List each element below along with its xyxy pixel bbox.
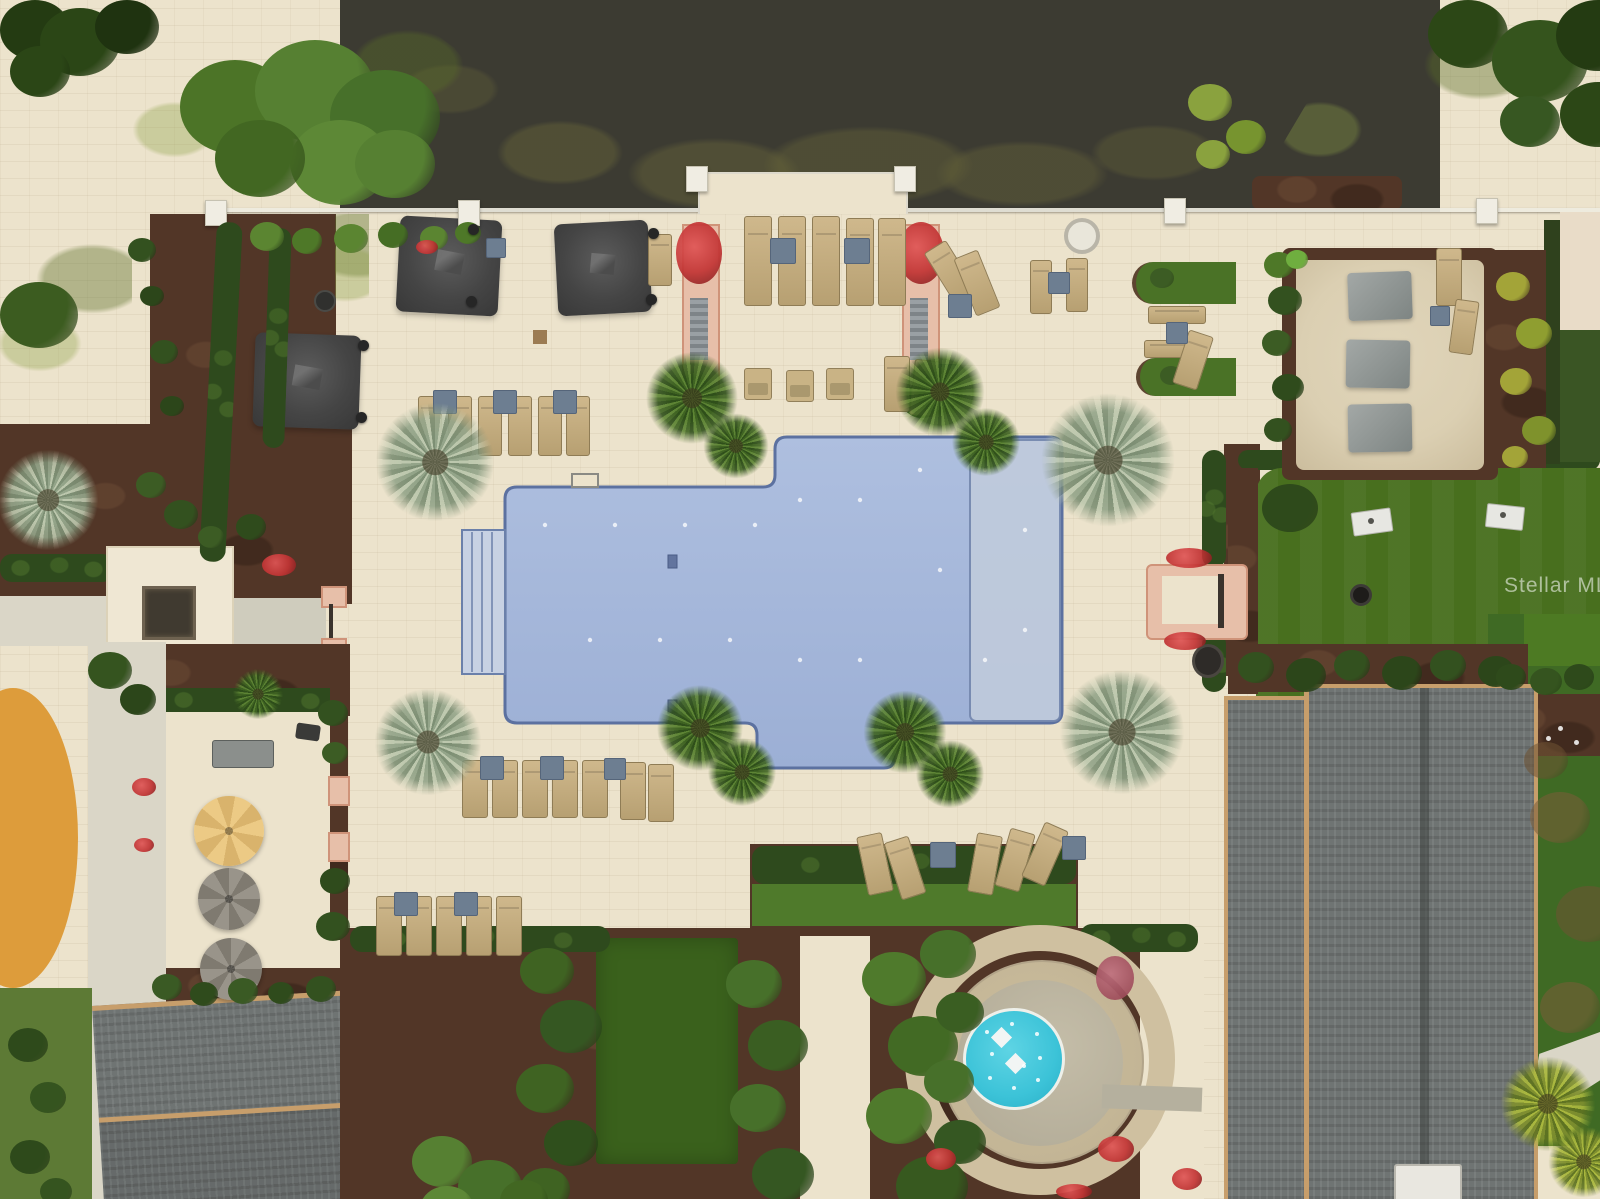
splash-jet xyxy=(1038,1056,1042,1060)
side-table xyxy=(1048,272,1070,294)
shrub xyxy=(306,976,336,1002)
shrub xyxy=(748,1020,808,1071)
splash-jet xyxy=(1035,1032,1039,1036)
shrub xyxy=(1530,668,1562,695)
sidewalk-west xyxy=(0,596,112,646)
patio-umbrella-tan xyxy=(194,796,264,866)
umbrella-wheel xyxy=(466,296,477,307)
lounge-chair xyxy=(648,234,672,286)
umbrella-wheel xyxy=(358,340,369,351)
flower-bed xyxy=(416,240,438,254)
shrub xyxy=(250,222,284,251)
palm-tree xyxy=(356,670,500,814)
patio-chair xyxy=(826,368,854,400)
shrub xyxy=(190,982,218,1006)
lawn-ball xyxy=(1350,584,1372,606)
flower-bed xyxy=(134,838,154,852)
shrub xyxy=(198,526,224,548)
flower-bed xyxy=(132,778,156,796)
shrub xyxy=(920,930,976,978)
east-shrub-block xyxy=(1560,330,1600,462)
shrub xyxy=(1238,652,1274,683)
sidewalk-plaza-east xyxy=(228,598,326,644)
splash-jet xyxy=(985,1030,989,1034)
shrub xyxy=(1272,374,1304,401)
patio-gate-pillar xyxy=(328,832,350,862)
east-wall xyxy=(1560,212,1600,332)
palm-tree xyxy=(224,660,292,728)
shrub xyxy=(1502,446,1528,468)
shrub xyxy=(544,1120,598,1166)
shrub xyxy=(1516,318,1552,349)
side-table xyxy=(553,390,577,414)
shrub xyxy=(292,228,322,254)
shrub xyxy=(95,0,159,54)
flower-bed xyxy=(1096,956,1134,1000)
shrub xyxy=(1382,656,1422,690)
cornhole-hole xyxy=(1368,518,1374,524)
entry-canopy xyxy=(1394,1164,1462,1199)
planter-pot xyxy=(1192,644,1224,678)
planter-pot xyxy=(314,290,336,312)
shrub xyxy=(128,238,156,262)
shrub xyxy=(215,120,305,197)
shrub xyxy=(520,948,574,994)
shrub xyxy=(924,1060,974,1103)
shrub xyxy=(236,514,266,540)
pool-steps xyxy=(462,530,505,674)
shrub xyxy=(1196,140,1230,169)
fence-post xyxy=(894,166,916,192)
shrub xyxy=(1496,272,1530,301)
white-flowers xyxy=(1574,740,1579,745)
shrub xyxy=(10,1140,50,1174)
palm-tree xyxy=(696,726,788,818)
shrub xyxy=(1262,484,1318,532)
splash-jet xyxy=(1022,1064,1026,1068)
pool-drain xyxy=(668,555,677,568)
patio-umbrella-gray xyxy=(198,868,260,930)
turf-northeast xyxy=(1524,614,1600,666)
shrub xyxy=(30,1082,66,1113)
shade-sail xyxy=(1346,339,1411,388)
shrub xyxy=(10,46,70,97)
lounge-chair xyxy=(496,896,522,956)
shrub xyxy=(316,912,350,941)
shrub xyxy=(1496,664,1526,690)
umbrella-wheel xyxy=(646,294,657,305)
flower-bed xyxy=(1166,548,1212,568)
shrub xyxy=(136,472,166,498)
palm-tree xyxy=(1038,648,1206,816)
shrub xyxy=(1286,658,1326,692)
pond-overlook-platform xyxy=(698,172,908,214)
shore-mulch-bed xyxy=(1252,176,1402,210)
patio-chair xyxy=(786,370,814,402)
splash-path xyxy=(1102,1084,1203,1111)
shrub xyxy=(228,978,258,1004)
shrub xyxy=(1430,650,1466,681)
shrub xyxy=(0,282,78,348)
white-flowers xyxy=(1546,736,1551,741)
west-gate-bar xyxy=(329,604,333,638)
shrub xyxy=(1530,792,1590,843)
shrub xyxy=(318,700,348,726)
lounge-chair xyxy=(878,218,906,306)
flower-bed xyxy=(1056,1184,1092,1199)
palm-tree xyxy=(940,396,1032,488)
shrub xyxy=(1334,650,1370,681)
shrub xyxy=(1564,664,1594,690)
shrub xyxy=(936,992,984,1033)
fence-post xyxy=(686,166,708,192)
shrub xyxy=(726,960,782,1008)
lounge-chair xyxy=(812,216,840,306)
outdoor-cabinet xyxy=(212,740,274,768)
lounge-chair xyxy=(744,216,772,306)
umbrella-wheel xyxy=(468,224,479,235)
flower-bed xyxy=(1172,1168,1202,1190)
shrub xyxy=(8,1028,48,1062)
playground-surface xyxy=(0,688,78,988)
shrub xyxy=(150,340,178,364)
shrub xyxy=(152,974,182,1000)
pool-ladder xyxy=(572,474,598,487)
roof-ridge xyxy=(1420,688,1429,1199)
cabana-umbrella xyxy=(554,220,653,317)
lounge-chair xyxy=(1436,248,1462,306)
side-table xyxy=(930,842,956,868)
shrub xyxy=(730,1084,786,1132)
shrub xyxy=(540,1000,602,1053)
side-table xyxy=(604,758,626,780)
shrub xyxy=(320,868,350,894)
fence-post xyxy=(1164,198,1186,224)
palm-tree xyxy=(355,382,515,542)
shrub xyxy=(322,742,348,764)
flower-bed xyxy=(676,222,722,284)
palm-tree xyxy=(1018,370,1198,550)
west-gate-post xyxy=(321,586,347,608)
side-table xyxy=(1430,306,1450,326)
fence-post xyxy=(1476,198,1498,224)
umbrella-wheel xyxy=(648,228,659,239)
shade-sail xyxy=(1347,271,1413,321)
side-table xyxy=(1166,322,1188,344)
cabana-umbrella xyxy=(396,215,503,316)
palm-tree xyxy=(904,728,996,820)
shrub xyxy=(268,982,294,1004)
shrub xyxy=(40,1178,72,1199)
side-table xyxy=(1062,836,1086,860)
flower-bed xyxy=(1164,632,1206,650)
shrub xyxy=(355,130,435,198)
flower-bed xyxy=(262,554,296,576)
side-table xyxy=(770,238,796,264)
palm-tree xyxy=(692,402,780,490)
shrub xyxy=(120,684,156,715)
shrub xyxy=(1268,286,1302,315)
shrub xyxy=(1540,982,1600,1033)
shrub xyxy=(1500,368,1532,395)
deck-grass-bed xyxy=(1132,262,1236,304)
side-table xyxy=(394,892,418,916)
side-table xyxy=(948,294,972,318)
shrub xyxy=(1264,418,1292,442)
aerial-photo-scene: Stellar MLS xyxy=(0,0,1600,1199)
white-flowers xyxy=(1558,726,1563,731)
east-gate-bar xyxy=(1218,574,1224,628)
shrub xyxy=(516,1064,574,1113)
shrub xyxy=(1262,330,1292,356)
shrub xyxy=(378,222,408,248)
shrub xyxy=(334,224,368,253)
side-table xyxy=(454,892,478,916)
shrub xyxy=(1226,120,1266,154)
watermark: Stellar MLS xyxy=(1504,574,1600,598)
shrub xyxy=(866,1088,932,1144)
patio-east-mulch xyxy=(330,688,348,940)
shrub xyxy=(1286,250,1308,269)
flower-bed xyxy=(1098,1136,1134,1162)
shrub xyxy=(164,500,198,529)
patio-gate-pillar xyxy=(328,776,350,806)
deck-marker xyxy=(533,330,547,344)
patio-lamp xyxy=(295,722,321,741)
shrub xyxy=(1500,96,1560,147)
splash-jet xyxy=(1036,1078,1040,1082)
event-lawn-turf xyxy=(596,938,738,1164)
side-table xyxy=(540,756,564,780)
deck-table-round xyxy=(1064,218,1100,254)
side-table xyxy=(844,238,870,264)
splash-jet xyxy=(990,1052,994,1056)
splash-jet xyxy=(1010,1022,1014,1026)
splash-jet xyxy=(988,1076,992,1080)
shrub xyxy=(1522,416,1556,445)
shrub xyxy=(752,1148,814,1199)
side-table xyxy=(486,238,506,258)
garden-path xyxy=(800,936,870,1199)
splash-jet xyxy=(1012,1086,1016,1090)
cornhole-hole xyxy=(1500,512,1506,518)
memorial-plaque xyxy=(142,586,196,640)
shade-sail xyxy=(1348,403,1413,452)
east-gate-opening xyxy=(1162,576,1220,624)
shrub xyxy=(862,952,926,1006)
flower-bed xyxy=(926,1148,956,1170)
